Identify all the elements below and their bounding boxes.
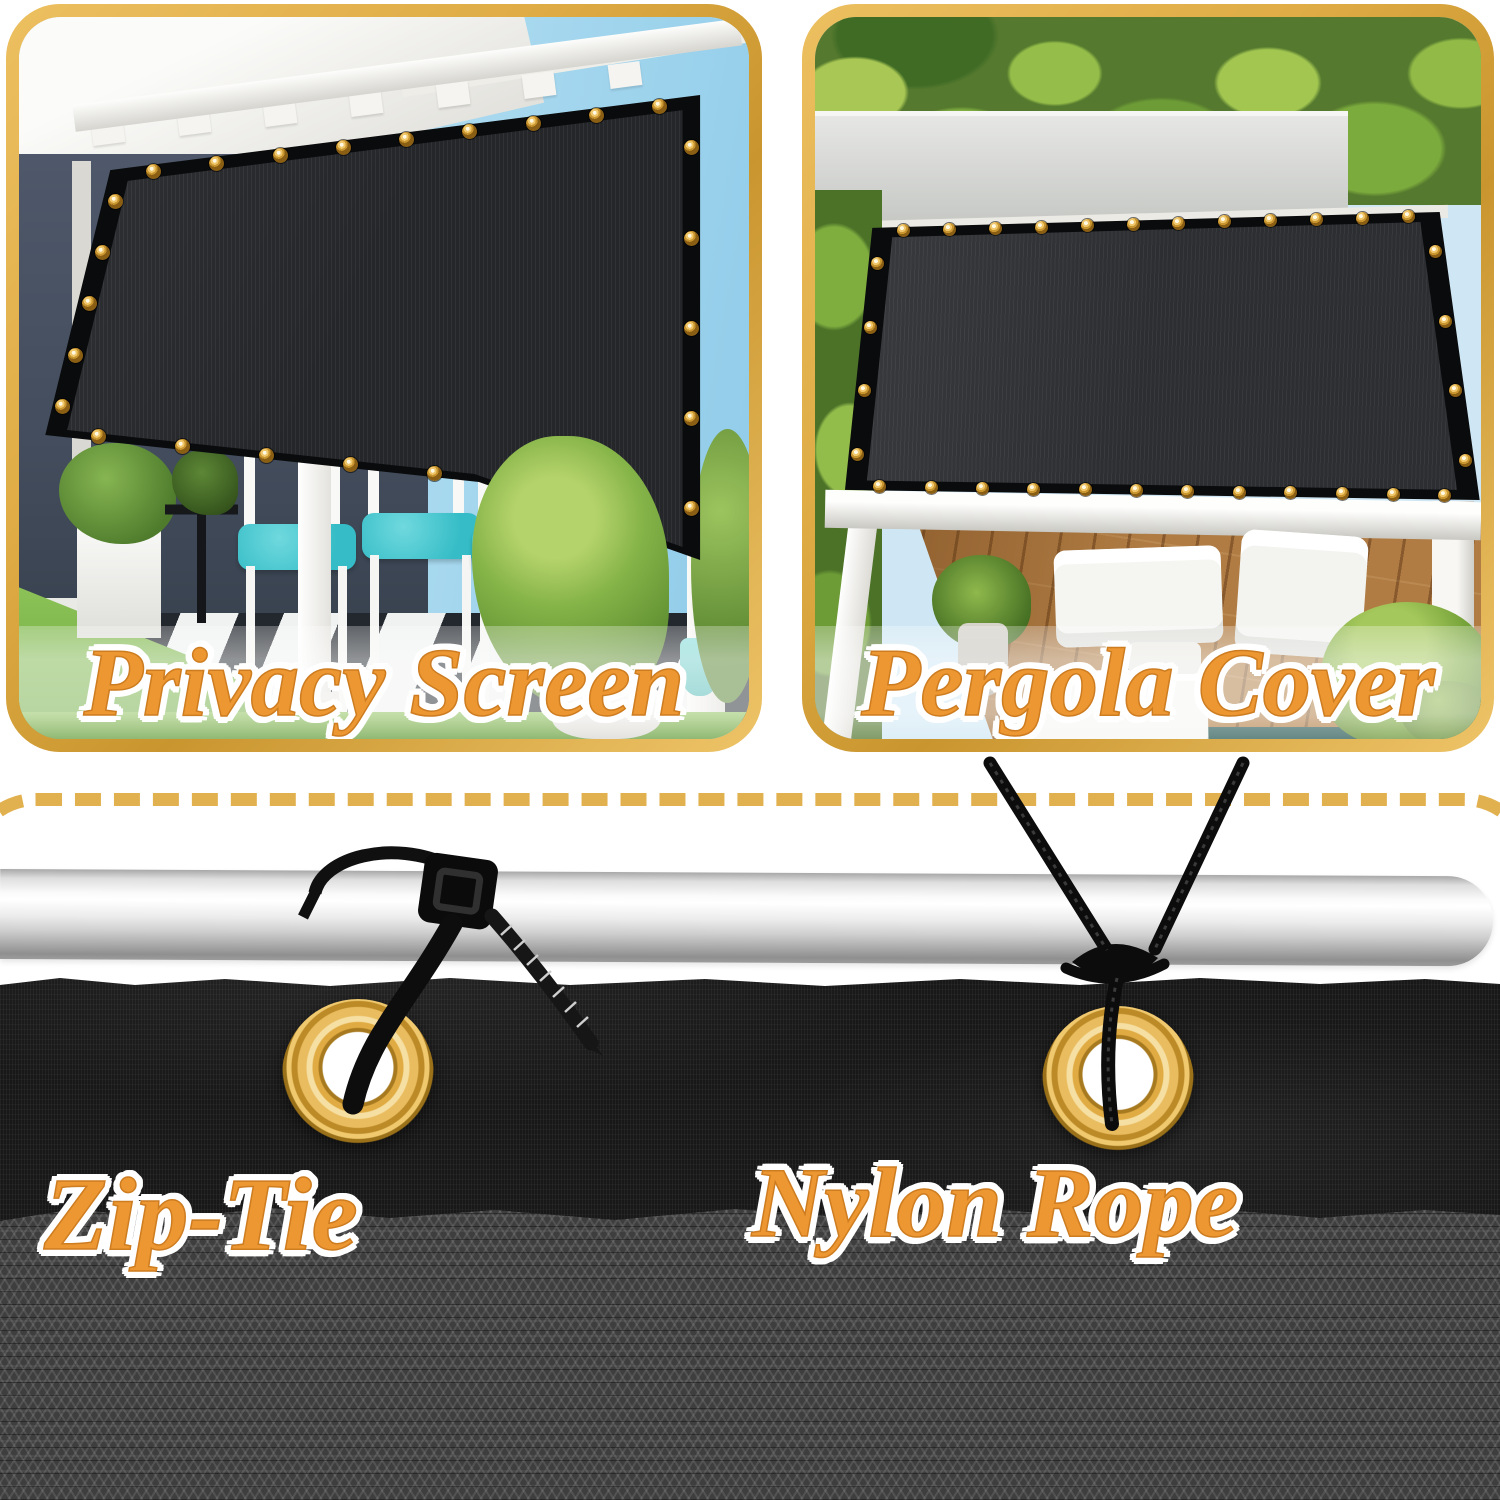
grommet-dot bbox=[1387, 488, 1400, 501]
grommet-dot bbox=[684, 231, 699, 246]
grommet-dot bbox=[1402, 210, 1415, 223]
grommet-dot bbox=[1310, 213, 1323, 226]
grommet-dot bbox=[1081, 219, 1094, 232]
grommet-dot bbox=[871, 257, 884, 270]
grommet-right bbox=[1042, 1006, 1194, 1158]
grommet-dot bbox=[1429, 245, 1442, 258]
grommet-dot bbox=[55, 399, 70, 414]
nylon-rope-label: Nylon Rope bbox=[752, 1153, 1238, 1253]
grommet-dot bbox=[851, 448, 864, 461]
grommet-dot bbox=[589, 108, 604, 123]
grommet-dot bbox=[1459, 454, 1472, 467]
grommet-dot bbox=[526, 116, 541, 131]
grommet-dot bbox=[1284, 486, 1297, 499]
grommet-dot bbox=[1181, 485, 1194, 498]
grommet-dot bbox=[976, 482, 989, 495]
zip-tie-label: Zip-Tie bbox=[44, 1163, 358, 1267]
grommet-dot bbox=[343, 457, 358, 472]
pergola-cover-photo: Pergola Cover bbox=[815, 17, 1481, 739]
grommet-dot bbox=[873, 480, 886, 493]
product-collage: Privacy Screen P bbox=[0, 0, 1500, 1500]
mounting-pole bbox=[0, 869, 1493, 966]
grommet-dot bbox=[462, 124, 477, 139]
pergola-cover-caption: Pergola Cover bbox=[861, 634, 1435, 731]
grommet-dot bbox=[399, 132, 414, 147]
grommet-dot bbox=[68, 348, 83, 363]
grommet-dot bbox=[273, 148, 288, 163]
grommet-dot bbox=[1356, 212, 1369, 225]
grommet-dot bbox=[336, 140, 351, 155]
grommet-dot bbox=[95, 245, 110, 260]
grommet-dot bbox=[1027, 483, 1040, 496]
grommet-dot bbox=[146, 164, 161, 179]
grommet-dot bbox=[1035, 221, 1048, 234]
grommet-dot bbox=[1233, 486, 1246, 499]
grommet-left bbox=[282, 999, 434, 1151]
privacy-screen-panel: Privacy Screen bbox=[6, 4, 762, 752]
grommet-dot bbox=[1130, 484, 1143, 497]
grommet-dot bbox=[1127, 218, 1140, 231]
grommet-dot bbox=[91, 429, 106, 444]
grommet-dot bbox=[989, 222, 1002, 235]
grommet-dot bbox=[652, 99, 667, 114]
grommet-dot bbox=[925, 481, 938, 494]
privacy-screen-caption-band: Privacy Screen bbox=[19, 626, 749, 739]
pergola-cover-caption-band: Pergola Cover bbox=[815, 626, 1481, 739]
grommet-dot bbox=[259, 448, 274, 463]
grommet-dot bbox=[684, 321, 699, 336]
grommet-dot bbox=[897, 224, 910, 237]
grommet-dot bbox=[1438, 489, 1451, 502]
grommet-dot bbox=[108, 194, 123, 209]
grommet-dot bbox=[1336, 487, 1349, 500]
grommet-dot bbox=[943, 223, 956, 236]
grommet-dot bbox=[1439, 315, 1452, 328]
pergola-cover-panel: Pergola Cover bbox=[802, 4, 1494, 752]
grommet-dot bbox=[209, 156, 224, 171]
grommet-dot bbox=[427, 466, 442, 481]
grommet-dot bbox=[175, 439, 190, 454]
grommet-dot bbox=[684, 140, 699, 155]
privacy-screen-caption: Privacy Screen bbox=[84, 634, 685, 731]
grommet-dot bbox=[1172, 217, 1185, 230]
grommet-dot bbox=[684, 501, 699, 516]
grommet-dot bbox=[858, 384, 871, 397]
grommet-dot bbox=[82, 296, 97, 311]
privacy-screen-photo: Privacy Screen bbox=[19, 17, 749, 739]
grommet-dot bbox=[1079, 483, 1092, 496]
grommet-dot bbox=[1264, 214, 1277, 227]
grommet-dot bbox=[1218, 215, 1231, 228]
grommet-dot bbox=[1449, 384, 1462, 397]
grommet-dot bbox=[684, 411, 699, 426]
grommet-dot bbox=[864, 321, 877, 334]
